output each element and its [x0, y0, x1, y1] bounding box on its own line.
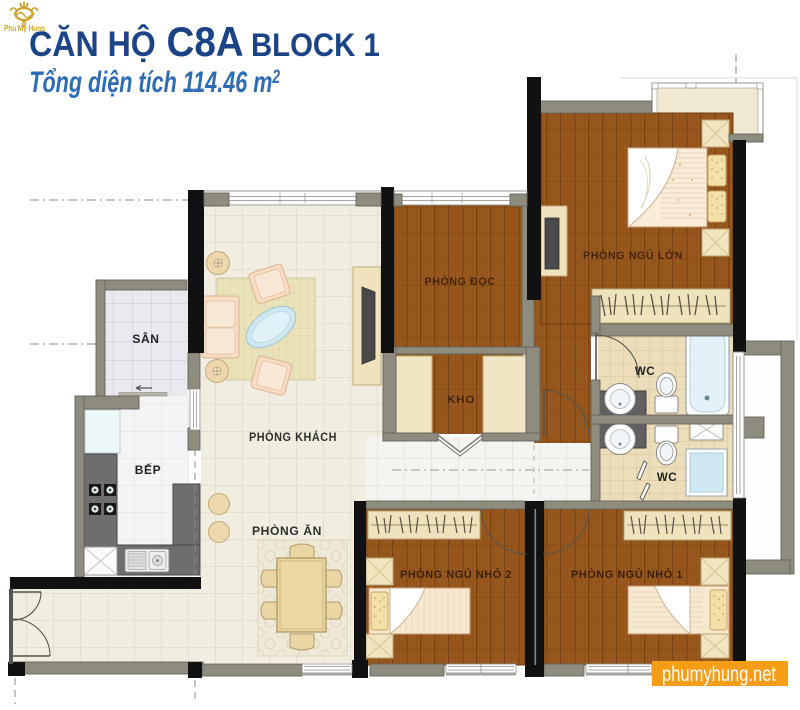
svg-text:KHO: KHO [447, 394, 475, 406]
svg-text:PHÒNG NGỦ NHỎ 1: PHÒNG NGỦ NHỎ 1 [571, 568, 683, 581]
svg-text:WC: WC [657, 472, 677, 484]
svg-text:PHÒNG NGỦ LỚN: PHÒNG NGỦ LỚN [583, 249, 683, 262]
svg-text:Tổng diện tích 114.46 m2: Tổng diện tích 114.46 m2 [29, 64, 280, 98]
svg-text:BẾP: BẾP [135, 462, 161, 477]
svg-text:PHÒNG ĂN: PHÒNG ĂN [252, 523, 322, 538]
svg-text:WC: WC [635, 366, 655, 378]
svg-text:phumyhung.net: phumyhung.net [662, 663, 776, 686]
svg-text:PHÒNG NGỦ NHỎ 2: PHÒNG NGỦ NHỎ 2 [400, 568, 512, 581]
svg-text:PHÒNG ĐỌC: PHÒNG ĐỌC [425, 275, 496, 288]
svg-text:SÂN: SÂN [132, 331, 159, 346]
svg-text:PHÒNG KHÁCH: PHÒNG KHÁCH [249, 429, 337, 444]
